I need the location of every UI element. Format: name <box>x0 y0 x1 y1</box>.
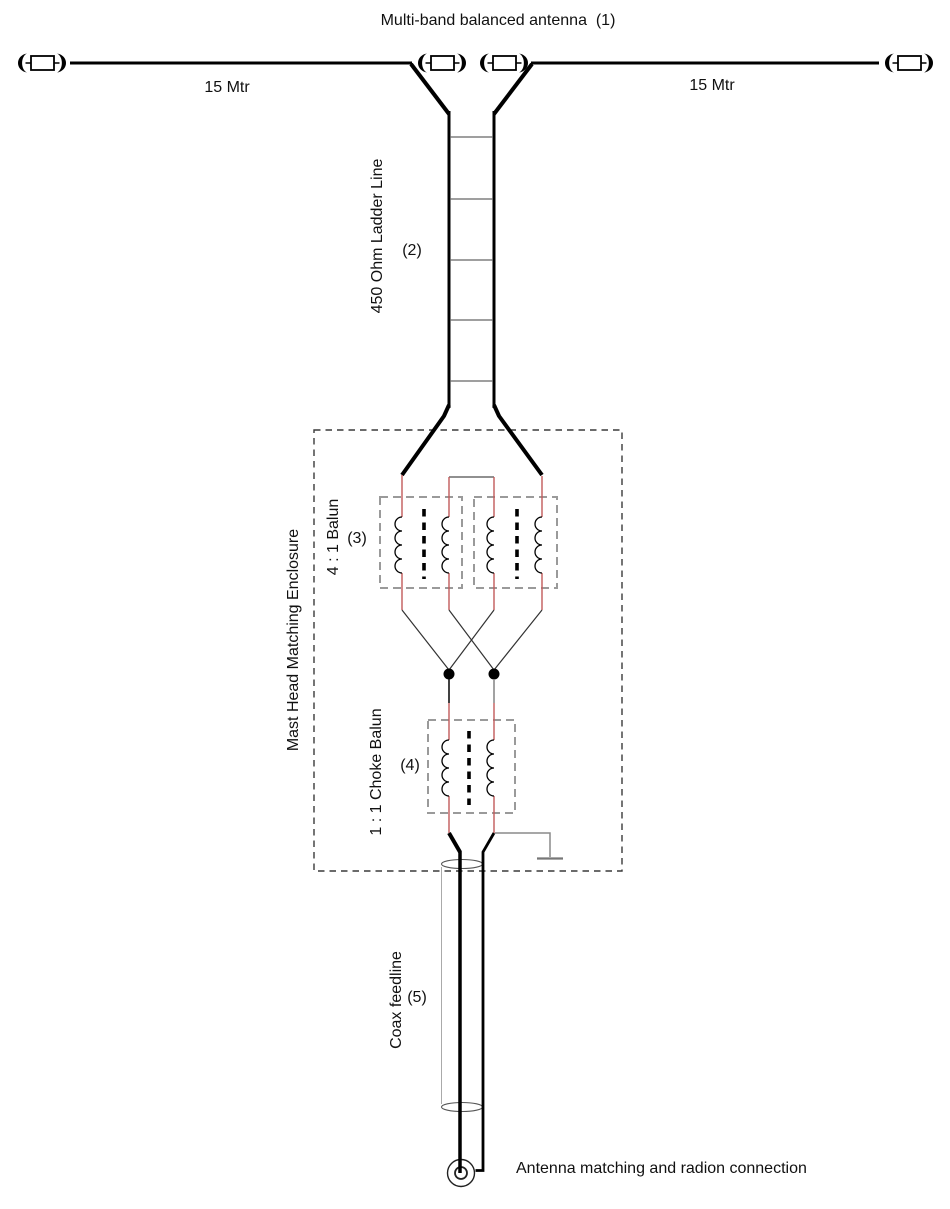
coax-feedline-ref: (5) <box>407 989 427 1007</box>
junction-dot <box>489 669 500 680</box>
choke-balun-box <box>428 720 515 813</box>
antenna-diagram: Multi-band balanced antenna (1) 15 Mtr 1… <box>0 0 950 1209</box>
ground-icon <box>495 833 563 859</box>
insulator-icon <box>18 54 66 73</box>
diagram-linework <box>0 0 950 1209</box>
coax-feedline-label: Coax feedline <box>388 951 406 1049</box>
ferrite-core-icon <box>424 509 517 579</box>
ladder-line-ref: (2) <box>402 242 422 260</box>
cross-connections <box>402 610 542 670</box>
insulator-icon <box>885 54 933 73</box>
junction-dot <box>444 669 455 680</box>
balun-4-1-boxes <box>380 497 557 588</box>
choke-balun-ref: (4) <box>400 757 420 775</box>
insulator-icon <box>480 54 528 73</box>
ladder-line <box>402 111 542 475</box>
coax-cylinder <box>442 860 483 1112</box>
ladder-line-label: 450 Ohm Ladder Line <box>369 159 387 314</box>
enclosure-label: Mast Head Matching Enclosure <box>285 529 303 751</box>
connection-label: Antenna matching and radion connection <box>516 1160 807 1178</box>
coax-conductors <box>449 833 494 1173</box>
right-wire-length-label: 15 Mtr <box>689 77 734 95</box>
left-wire-length-label: 15 Mtr <box>204 79 249 97</box>
balun-4-1-label: 4 : 1 Balun <box>325 499 343 576</box>
antenna-wires <box>70 63 879 114</box>
choke-balun-label: 1 : 1 Choke Balun <box>368 708 386 835</box>
diagram-title: Multi-band balanced antenna (1) <box>381 12 616 30</box>
balun-4-1-ref: (3) <box>347 530 367 548</box>
winding-coils <box>395 517 542 573</box>
insulator-icon <box>418 54 466 73</box>
